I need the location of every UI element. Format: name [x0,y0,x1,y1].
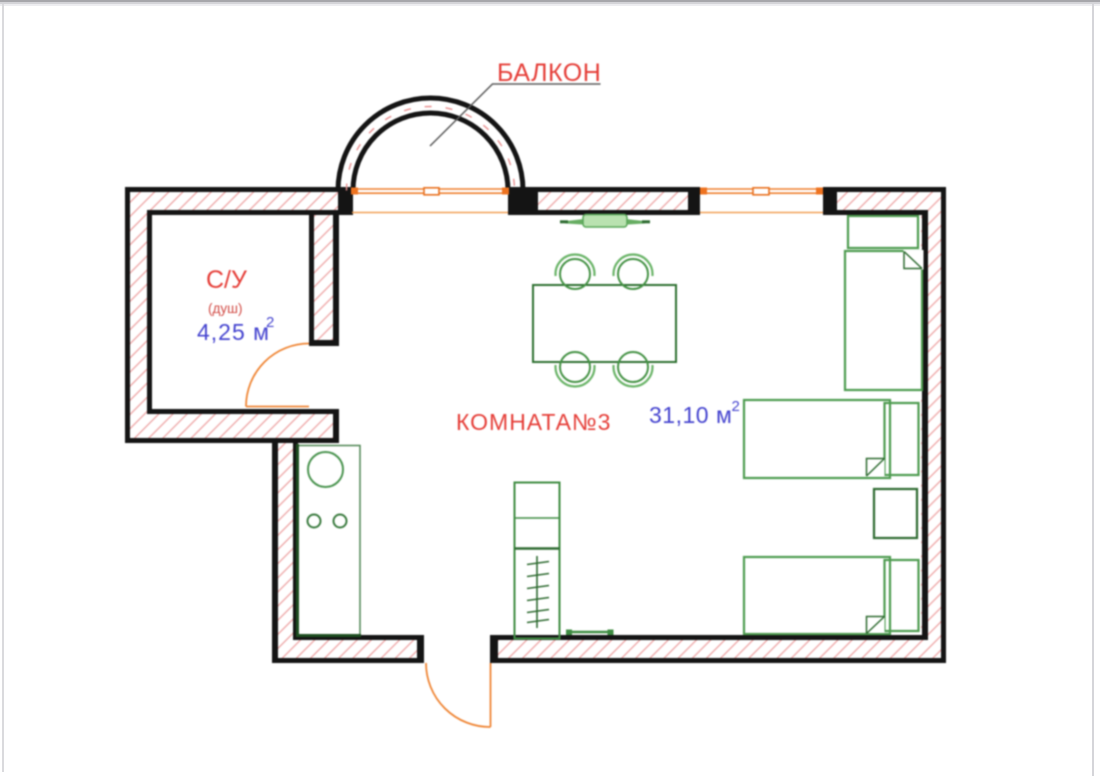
svg-text:КОМНАТА№3: КОМНАТА№3 [456,409,611,435]
svg-text:31,10 м: 31,10 м [649,402,732,428]
svg-text:2: 2 [266,314,274,331]
svg-text:(душ): (душ) [208,301,242,316]
svg-text:2: 2 [732,398,740,415]
svg-text:С/У: С/У [206,266,247,294]
svg-text:4,25 м: 4,25 м [197,319,270,345]
svg-text:БАЛКОН: БАЛКОН [497,59,601,87]
